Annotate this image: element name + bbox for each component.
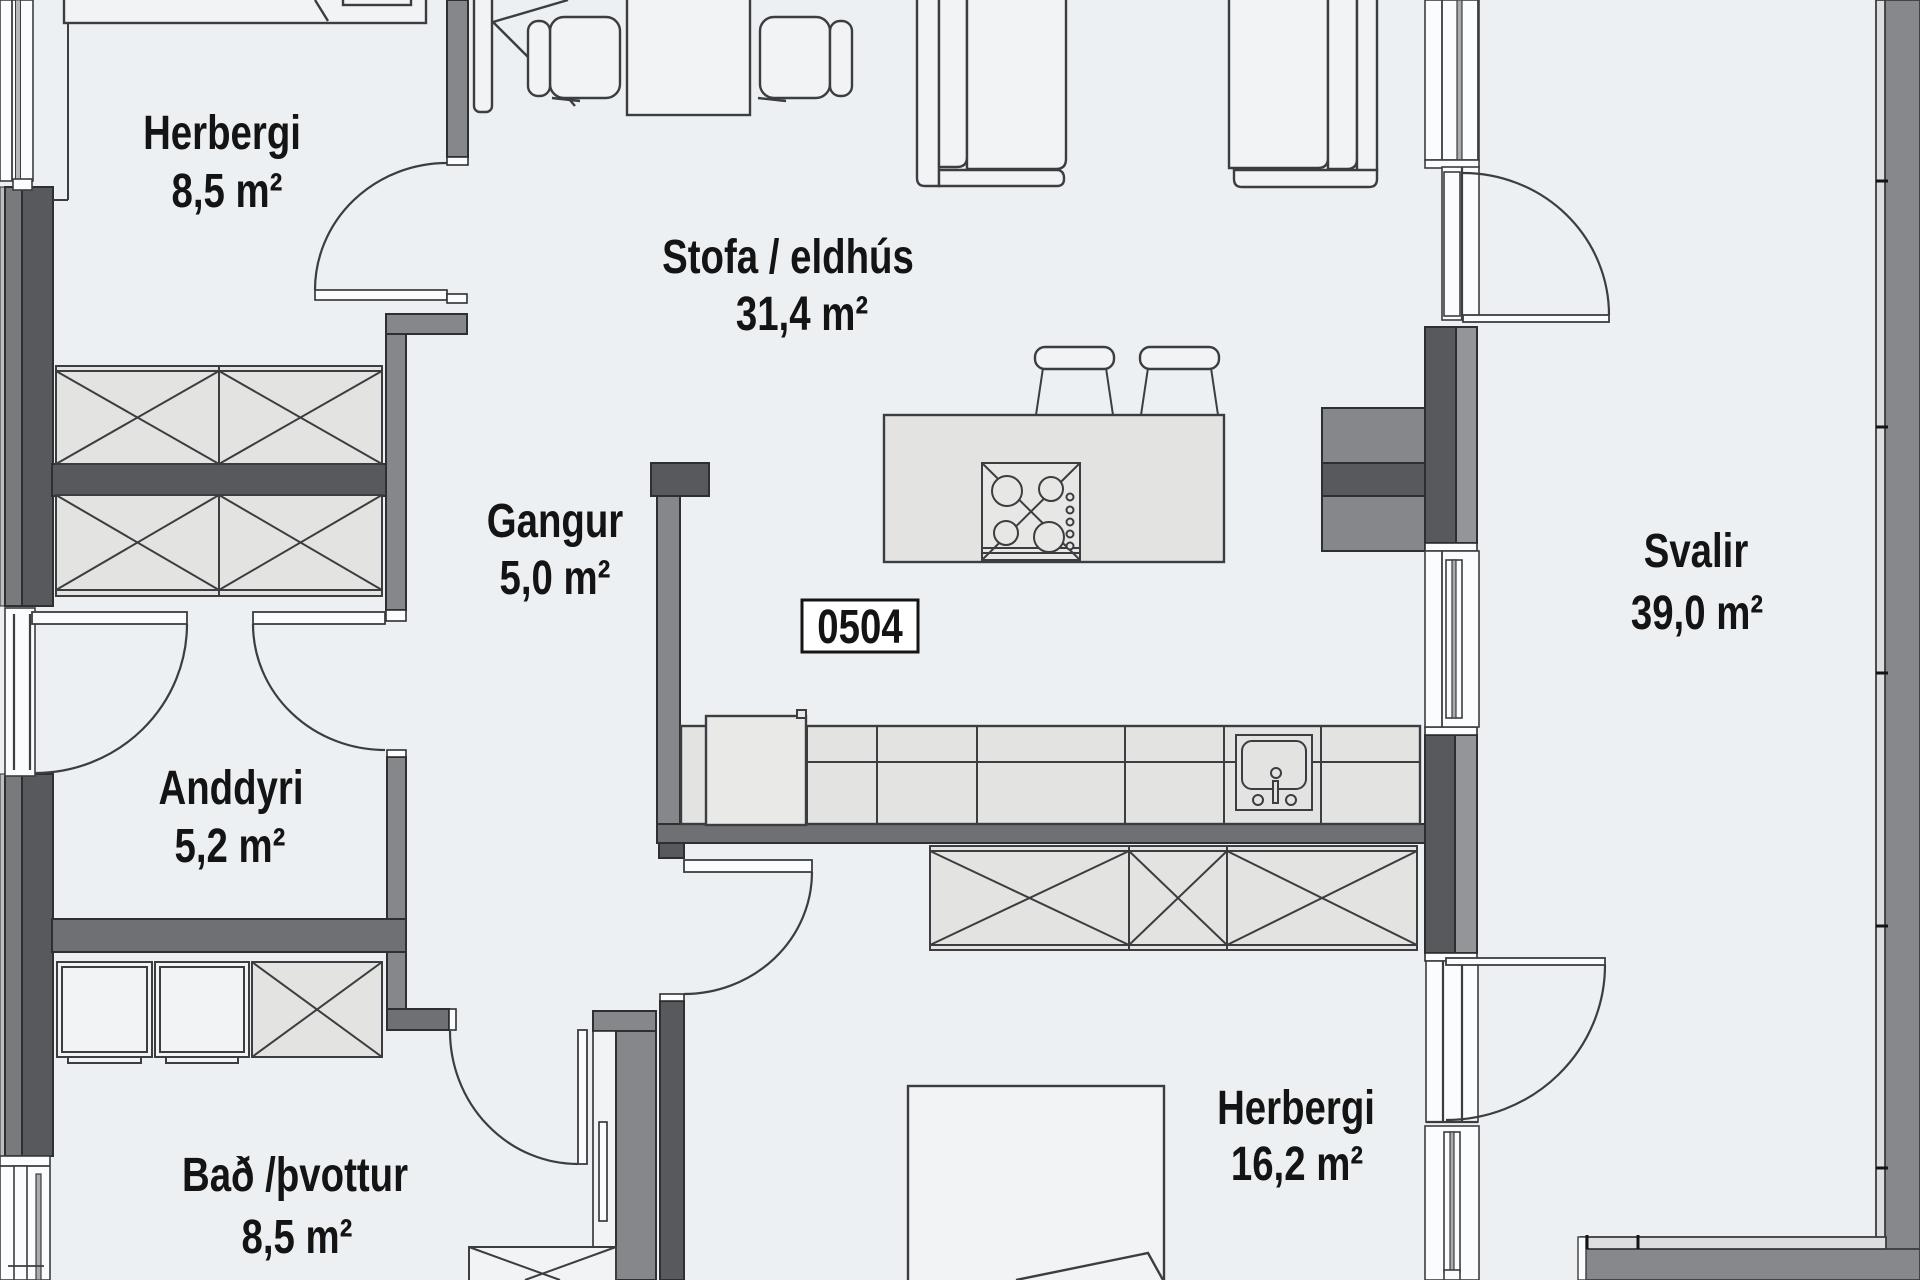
svg-text:39,0 m²: 39,0 m² [1631,587,1763,640]
svg-text:Stofa / eldhús: Stofa / eldhús [662,231,914,284]
svg-text:Herbergi: Herbergi [143,107,301,160]
svg-text:Gangur: Gangur [487,495,624,548]
svg-text:Anddyri: Anddyri [158,762,303,815]
svg-text:8,5 m²: 8,5 m² [242,1211,353,1264]
svg-text:5,0 m²: 5,0 m² [500,552,611,605]
svg-text:Svalir: Svalir [1644,525,1749,578]
svg-text:5,2 m²: 5,2 m² [175,820,286,873]
svg-text:Bað /þvottur: Bað /þvottur [182,1149,408,1202]
svg-text:31,4 m²: 31,4 m² [736,288,868,341]
svg-text:Herbergi: Herbergi [1217,1082,1375,1135]
svg-text:8,5 m²: 8,5 m² [172,165,283,218]
svg-text:16,2 m²: 16,2 m² [1231,1138,1363,1191]
svg-text:0504: 0504 [817,601,902,654]
